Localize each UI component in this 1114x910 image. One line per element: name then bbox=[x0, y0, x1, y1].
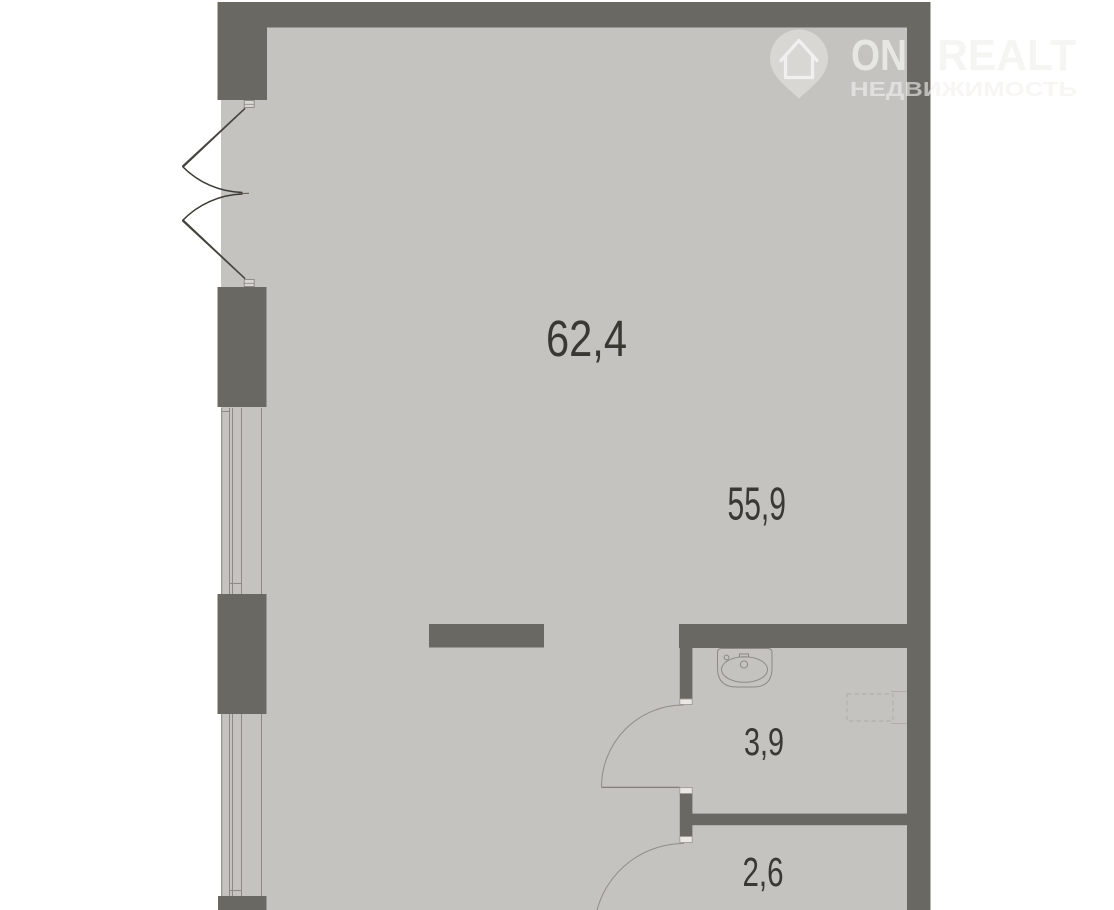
svg-text:2,6: 2,6 bbox=[743, 849, 784, 895]
svg-text:ON: ON bbox=[851, 31, 907, 80]
svg-text:REALT: REALT bbox=[937, 31, 1076, 80]
svg-text:3,9: 3,9 bbox=[744, 721, 784, 764]
svg-text:НЕДВИЖИМОСТЬ: НЕДВИЖИМОСТЬ bbox=[850, 79, 1077, 101]
svg-text:55,9: 55,9 bbox=[728, 478, 787, 530]
svg-text:62,4: 62,4 bbox=[546, 310, 627, 367]
